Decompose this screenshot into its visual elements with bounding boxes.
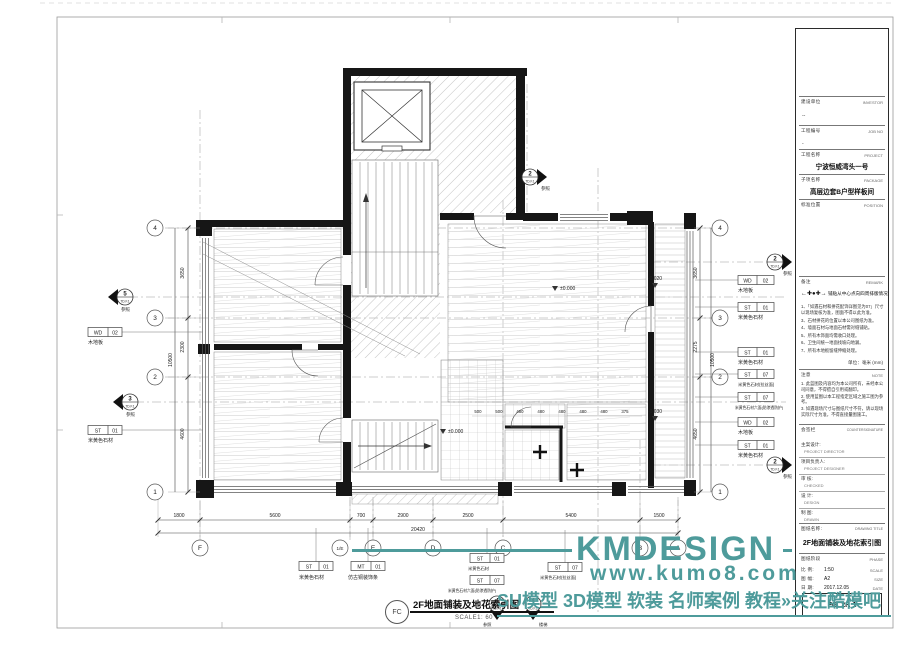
- planter-hatch: [352, 494, 498, 504]
- material-tag-caption: 米黄色石材: [738, 359, 763, 366]
- project-label-en: PROJECT: [864, 153, 883, 158]
- grid-bubble-label: 4: [153, 225, 157, 232]
- north-window: [558, 213, 610, 221]
- material-tags-bottom: ST 01 米黄色石材 MT 01 仿古铜装饰条 ST 01 米黄色石材 ST …: [299, 528, 582, 593]
- material-tag-caption: 木地板: [738, 287, 753, 294]
- center-point-caption: 铺贴从中心点向四周排版情况: [828, 291, 888, 296]
- grid-bubble-label: 3: [718, 315, 722, 322]
- level-text: ±0.000: [448, 429, 463, 435]
- svg-text:07: 07: [494, 579, 500, 585]
- svg-text:375: 375: [621, 409, 629, 414]
- svg-text:参照: 参照: [541, 185, 550, 192]
- dim-text: 2275: [693, 341, 699, 352]
- general-note: 1. 此蓝图及内容均为本公司所有，未经本公司同意，不得擅自引用或翻印。: [801, 381, 884, 393]
- size-label-zh: 图 幅:: [801, 576, 814, 582]
- section-marker: 2 TD.F.1 参照: [767, 254, 792, 277]
- watermark-rule-right: [783, 549, 792, 552]
- remark-note: 7、所有木地板留缝伸缩处理。: [801, 348, 884, 354]
- dim-text: 1800: [173, 513, 184, 519]
- svg-text:MT: MT: [357, 565, 364, 571]
- dim-text: 4650: [693, 428, 699, 439]
- dim-text: 2300: [180, 341, 186, 352]
- material-tag: ST 01 米黄色石材: [299, 528, 333, 581]
- role-label-zh: 项目负责人:: [801, 459, 825, 465]
- svg-text:480: 480: [516, 409, 524, 414]
- center-point-symbol: ←✚●✚→: [801, 291, 827, 297]
- material-tag-caption: 木地板: [738, 429, 753, 436]
- grid-bubble-label: 2: [718, 374, 722, 381]
- dim-total-text: 10500: [168, 353, 174, 367]
- svg-text:01: 01: [112, 429, 118, 435]
- role-label-en: PROJECT DESIGNER: [804, 466, 845, 471]
- project-label-zh: 工程名称: [801, 152, 821, 158]
- material-tags-right: WD 02 木地板 ST 01 米黄色石材 ST 01 米黄色石材 ST 07 …: [695, 276, 784, 460]
- grid-bubble-label: 1: [718, 489, 722, 496]
- remark-label-en: REMARK: [866, 280, 883, 285]
- svg-text:01: 01: [323, 565, 329, 571]
- svg-text:ST: ST: [744, 444, 750, 450]
- role-label-zh: 审 核:: [801, 476, 813, 482]
- position-label-zh: 标准位置: [801, 202, 821, 208]
- svg-text:参照: 参照: [783, 473, 792, 480]
- scale-label-en: SCALE: [870, 568, 883, 573]
- section-marker: 3 TD.F.1 参照: [113, 394, 138, 418]
- title-block: 建设单位 INVESTOR -- 工程编号 JOB NO - 工程名称 PROJ…: [795, 28, 889, 617]
- svg-text:07: 07: [763, 373, 769, 379]
- remark-note: 6、卫生间统一地面找坡向地漏。: [801, 340, 884, 346]
- material-tag: WD 02 木地板: [695, 276, 774, 295]
- material-tag-caption: 米黄色石材: [299, 574, 324, 581]
- general-note: 2. 使用蓝图以本工程指定区域之施工图为参考。: [801, 394, 884, 406]
- job-no-value: -: [802, 141, 804, 147]
- svg-text:480: 480: [600, 409, 608, 414]
- package-label-zh: 子项名称: [801, 177, 821, 183]
- drawing-label-ref-circle: FC: [385, 600, 409, 624]
- drawing-sheet: ±0.000 ±0.000 -0.020 -0.030 500500 48048…: [0, 0, 900, 645]
- dim-text: 2900: [397, 513, 408, 519]
- remark-note: 1、「如遇石材和拼花配饰详图见为07」尺寸以现场复核为准，图面不得以此为准。: [801, 304, 884, 317]
- material-tag-caption: 米黄色石材: [738, 452, 763, 459]
- material-tag: ST 07 米黄色石材六面(防渗透防护): [448, 576, 504, 594]
- material-tag: WD 02 木地板: [695, 418, 774, 437]
- svg-text:TD.F.1: TD.F.1: [770, 468, 780, 472]
- svg-text:ST: ST: [477, 579, 483, 585]
- material-tag-caption: 米黄色石材: [468, 565, 489, 572]
- package-value: 高层边套B户型样板间: [796, 186, 888, 196]
- grid-bubble-label: 2: [153, 374, 157, 381]
- role-label-zh: 制 图:: [801, 510, 813, 516]
- remark-notes: 1、「如遇石材和拼花配饰详图见为07」尺寸以现场复核为准，图面不得以此为准。 3…: [801, 304, 884, 355]
- material-tag: ST 01 米黄色石材: [695, 441, 774, 460]
- project-value: 宁波恒威湾头一号: [796, 161, 888, 171]
- svg-text:01: 01: [375, 565, 381, 571]
- grid-bubble-label: F: [198, 545, 202, 552]
- dim-total-text: 20420: [411, 527, 425, 533]
- dim-text: 5600: [269, 513, 280, 519]
- role-label-en: DESIGN: [804, 500, 819, 505]
- svg-text:TD.F.1: TD.F.1: [770, 265, 780, 269]
- drawing-title-value: 2F地面铺装及地花索引图: [796, 538, 888, 548]
- phase-label-en: PHASE: [869, 557, 883, 562]
- svg-text:480: 480: [558, 409, 566, 414]
- svg-text:07: 07: [763, 396, 769, 402]
- left-dimensions: 3650 2300 4600 10500: [168, 226, 200, 495]
- dim-text: 700: [357, 513, 366, 519]
- grid-bubble-label: 1: [153, 489, 157, 496]
- svg-text:01: 01: [494, 557, 500, 563]
- section-marker: 2 TD.F.1 参照: [767, 457, 792, 480]
- material-tag: MT 01 仿古铜装饰条: [348, 528, 385, 581]
- phase-label-zh: 图纸阶段: [801, 556, 821, 562]
- material-tag-caption: 米黄色石材(拉丝面): [540, 574, 577, 581]
- scale-value: 1:50: [824, 567, 834, 573]
- note-label-zh: 注意: [801, 372, 811, 378]
- grid-bubble-label: 3: [153, 315, 157, 322]
- role-label-en: PROJECT DIRECTOR: [804, 449, 845, 454]
- level-text: -0.030: [648, 409, 662, 415]
- drawing-label-ref: FC: [392, 609, 401, 616]
- unit-note: 单位：毫米 (mm): [848, 360, 883, 366]
- grid-bubble-label: 4: [718, 225, 722, 232]
- svg-text:01: 01: [763, 306, 769, 312]
- material-tag-caption: 木地板: [88, 339, 103, 346]
- remark-note: 4、墙面石材与地面石材需对缝铺贴。: [801, 325, 884, 331]
- material-tag-caption: 仿古铜装饰条: [348, 574, 378, 581]
- svg-text:楼梯: 楼梯: [539, 621, 547, 628]
- stair-upper: [352, 160, 438, 296]
- svg-text:ST: ST: [95, 429, 101, 435]
- svg-text:ST: ST: [744, 351, 750, 357]
- material-tag-caption: 米黄色石材六面(防渗透防护): [448, 588, 497, 593]
- grid-bubble-label: 1/E: [337, 546, 344, 551]
- svg-text:500: 500: [474, 409, 482, 414]
- level-text: -0.020: [648, 276, 662, 282]
- svg-text:TD.F.1: TD.F.1: [120, 300, 130, 304]
- dim-text: 5400: [565, 513, 576, 519]
- size-value: A2: [824, 576, 830, 582]
- remark-note: 3、石材拼花的位置以本公司图纸为准。: [801, 318, 884, 324]
- role-label-zh: 主案设计:: [801, 442, 821, 448]
- svg-text:ST: ST: [744, 306, 750, 312]
- material-tag-caption: 米黄色石材: [88, 437, 113, 444]
- svg-text:02: 02: [112, 331, 118, 337]
- investor-label-en: INVESTOR: [863, 100, 883, 105]
- role-label-en: CHECKED: [804, 483, 824, 488]
- svg-text:TD.F.1: TD.F.1: [525, 180, 535, 184]
- svg-text:ST: ST: [306, 565, 312, 571]
- watermark-rule-left: [352, 549, 572, 552]
- svg-text:WD: WD: [94, 331, 103, 337]
- investor-label-zh: 建设单位: [801, 99, 821, 105]
- grid-bubbles-left: 4 3 2 1: [147, 220, 163, 500]
- general-notes: 1. 此蓝图及内容均为本公司所有，未经本公司同意，不得擅自引用或翻印。 2. 使…: [801, 381, 884, 419]
- dim-text: 1500: [653, 513, 664, 519]
- elevator-shaft: [354, 82, 430, 151]
- material-tag: ST 01 米黄色石材: [695, 348, 774, 367]
- bedroom2-wood-floor: [214, 352, 341, 480]
- bedroom1-wood-floor: [214, 229, 341, 342]
- svg-text:参照: 参照: [126, 411, 135, 418]
- svg-text:ST: ST: [744, 373, 750, 379]
- dim-text: 2500: [462, 513, 473, 519]
- countersign-label-en: COUNTERSIGNATURE: [847, 428, 883, 432]
- svg-text:02: 02: [763, 279, 769, 285]
- watermark-url: www.kumo8.com: [590, 562, 800, 586]
- note-label-en: NOTE: [872, 373, 883, 378]
- material-tag: ST 07 米黄色石材六面(防渗透防护): [695, 393, 784, 411]
- material-tag-caption: 米黄色石材(拉丝面): [738, 381, 775, 388]
- scale-label-zh: 比 例:: [801, 567, 814, 573]
- svg-text:参照: 参照: [483, 621, 491, 628]
- dim-text: 3650: [693, 267, 699, 278]
- section-marker: 2 TD.F.1 参照: [522, 169, 550, 192]
- svg-text:WD: WD: [743, 421, 752, 427]
- bath-tile-floor: [505, 430, 559, 480]
- job-no-label-zh: 工程编号: [801, 128, 821, 134]
- general-note: 3. 如遇现场尺寸与图纸尺寸不符，请以现场实际尺寸为准，不得直接量图施工。: [801, 406, 884, 418]
- svg-text:参照: 参照: [121, 306, 130, 313]
- center-point-symbol-row: ←✚●✚→ 铺贴从中心点向四周排版情况: [801, 290, 888, 297]
- svg-text:01: 01: [763, 444, 769, 450]
- balcony-floor: [655, 224, 685, 478]
- package-label-en: PACKAGE: [864, 178, 883, 183]
- material-tag: ST 07 米黄色石材(拉丝面): [695, 370, 775, 389]
- svg-text:ST: ST: [744, 396, 750, 402]
- hall-stone-floor: [441, 360, 503, 480]
- watermark-promo: SU模型 3D模型 软装 名师案例 教程»关注酷模吧: [497, 587, 891, 617]
- bedroom3-wood-floor: [567, 404, 646, 480]
- svg-text:参照: 参照: [783, 270, 792, 277]
- floor-finishes: [214, 76, 685, 504]
- level-text: ±0.000: [560, 286, 575, 292]
- dim-total-text: 10500: [710, 353, 716, 367]
- stair-lower: [352, 420, 438, 472]
- job-no-label-en: JOB NO: [868, 129, 883, 134]
- svg-text:500: 500: [495, 409, 503, 414]
- drawing-label-scale: SCALE1: 60: [455, 615, 493, 621]
- right-dimensions: 3650 2275 4650 10500: [693, 226, 716, 495]
- svg-text:WD: WD: [743, 279, 752, 285]
- svg-text:ST: ST: [555, 566, 561, 572]
- investor-value: --: [802, 113, 805, 119]
- remark-label-zh: 备注: [801, 279, 811, 285]
- svg-text:TD.F.1: TD.F.1: [125, 405, 135, 409]
- svg-text:480: 480: [579, 409, 587, 414]
- role-label-en: DRAWN: [804, 517, 819, 522]
- material-tag-caption: 米黄色石材六面(防渗透防护): [735, 405, 784, 410]
- svg-text:480: 480: [537, 409, 545, 414]
- svg-text:02: 02: [763, 421, 769, 427]
- position-label-en: POSITION: [864, 203, 883, 208]
- dim-text: 3650: [180, 267, 186, 278]
- material-tag-caption: 米黄色石材: [738, 314, 763, 321]
- svg-text:01: 01: [763, 351, 769, 357]
- material-tag: ST 01 米黄色石材: [695, 303, 774, 322]
- drawing-title-label-en: DRAWING TITLE: [855, 527, 883, 531]
- section-marker: 5 TD.F.1 参照: [108, 289, 133, 313]
- role-label-zh: 设 计:: [801, 493, 813, 499]
- remark-note: 5、所有木饰面均需收口处理。: [801, 333, 884, 339]
- svg-text:ST: ST: [477, 557, 483, 563]
- size-label-en: SIZE: [874, 577, 883, 582]
- drawing-title-label-zh: 图纸名称:: [801, 526, 822, 532]
- countersign-label-zh: 会签栏: [801, 427, 816, 433]
